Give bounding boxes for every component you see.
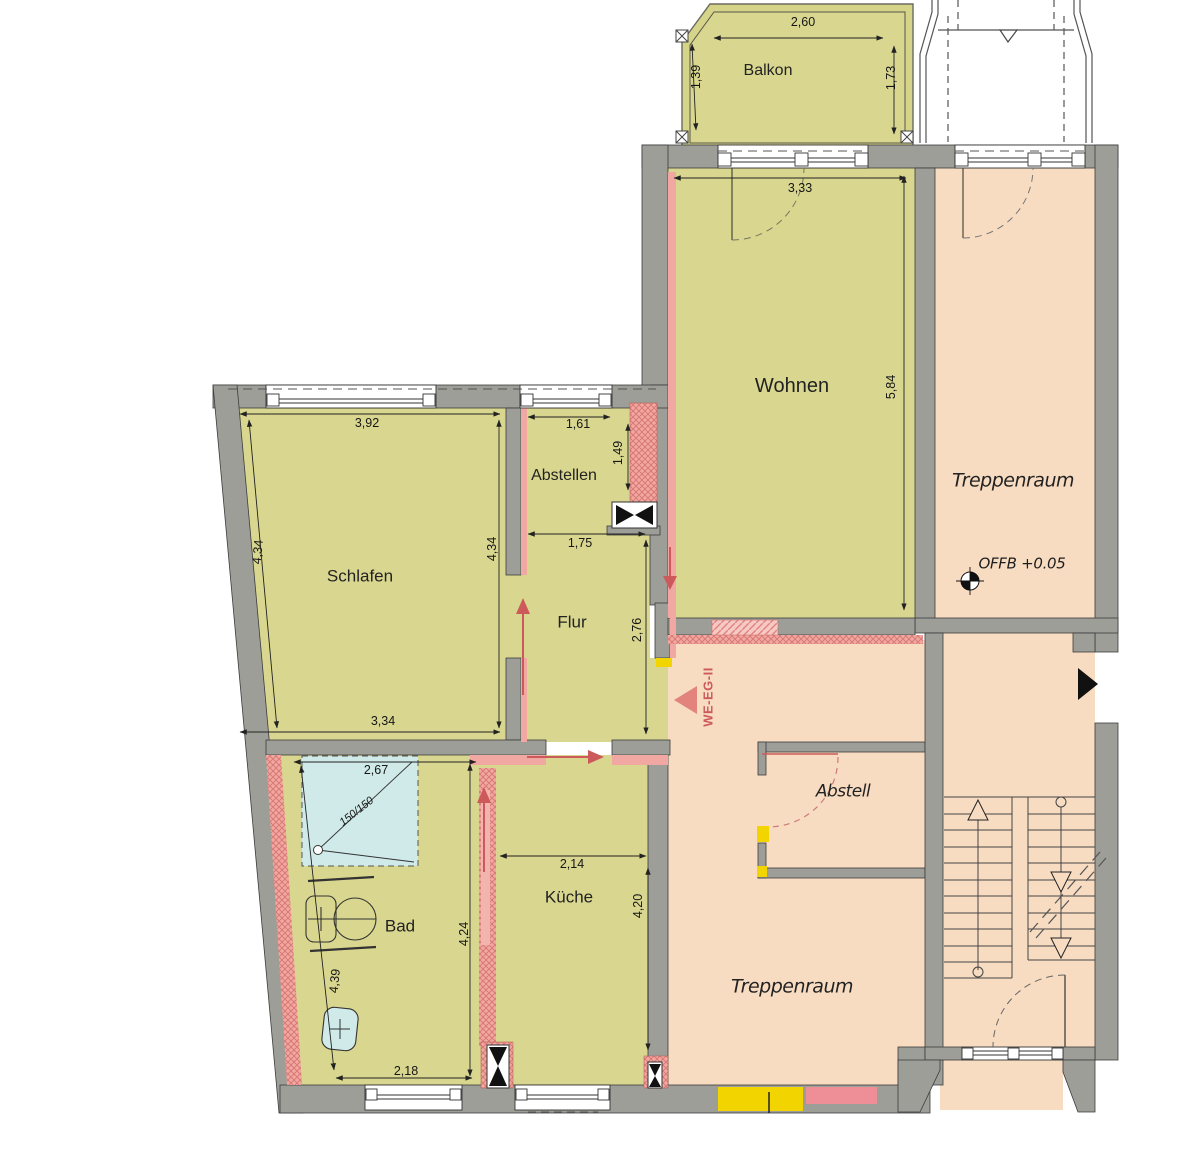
level-mark: OFFB +0.05 (978, 557, 1065, 572)
dim-wohnen-depth: 5,84 (885, 375, 898, 399)
dim-balkon-width: 2,60 (791, 16, 815, 29)
dim-kueche-left: 4,24 (458, 922, 471, 946)
room-label-flur: Flur (557, 614, 586, 631)
dim-balkon-right: 1,73 (885, 66, 898, 90)
room-label-abstell: Abstell (816, 784, 870, 801)
dim-schlafen-bottom: 3,34 (371, 715, 395, 728)
dim-wohnen-width: 3,33 (788, 182, 812, 195)
room-label-schlafen: Schlafen (327, 568, 393, 585)
dim-schlafen-left: 4,34 (251, 539, 266, 564)
room-label-kueche: Küche (545, 889, 593, 906)
apartment-entry-label: WE-EG-II (702, 667, 715, 727)
room-label-bad: Bad (385, 918, 415, 935)
dim-balkon-left: 1,39 (690, 65, 703, 89)
dim-flur-width: 1,75 (568, 537, 592, 550)
dim-bad-bottom: 2,18 (394, 1065, 418, 1078)
dim-schlafen-top: 3,92 (355, 417, 379, 430)
room-label-abstellen: Abstellen (531, 468, 597, 484)
dim-kueche-right: 4,20 (632, 894, 645, 918)
floor-plan-drawing (0, 0, 1200, 1162)
room-label-balkon: Balkon (744, 63, 793, 79)
room-label-treppenraum-upper: Treppenraum (952, 472, 1074, 491)
entrance-arrow-icon (1000, 30, 1017, 42)
dim-bad-left: 4,39 (328, 968, 343, 994)
dim-schlafen-right: 4,34 (486, 537, 499, 561)
dim-abstellen-width: 1,61 (566, 418, 590, 431)
room-label-treppenraum-lower: Treppenraum (731, 978, 853, 997)
dim-abstellen-depth: 1,49 (612, 441, 625, 465)
sink (321, 1006, 359, 1051)
entrance-porch (920, 0, 1092, 143)
floor-plan: Balkon 2,60 1,39 1,73 Wohnen 3,33 5,84 T… (0, 0, 1200, 1162)
dim-bad-top: 2,67 (364, 764, 388, 777)
dim-flur-depth: 2,76 (631, 618, 644, 642)
room-label-wohnen: Wohnen (755, 376, 829, 396)
dim-kueche-width: 2,14 (560, 858, 584, 871)
